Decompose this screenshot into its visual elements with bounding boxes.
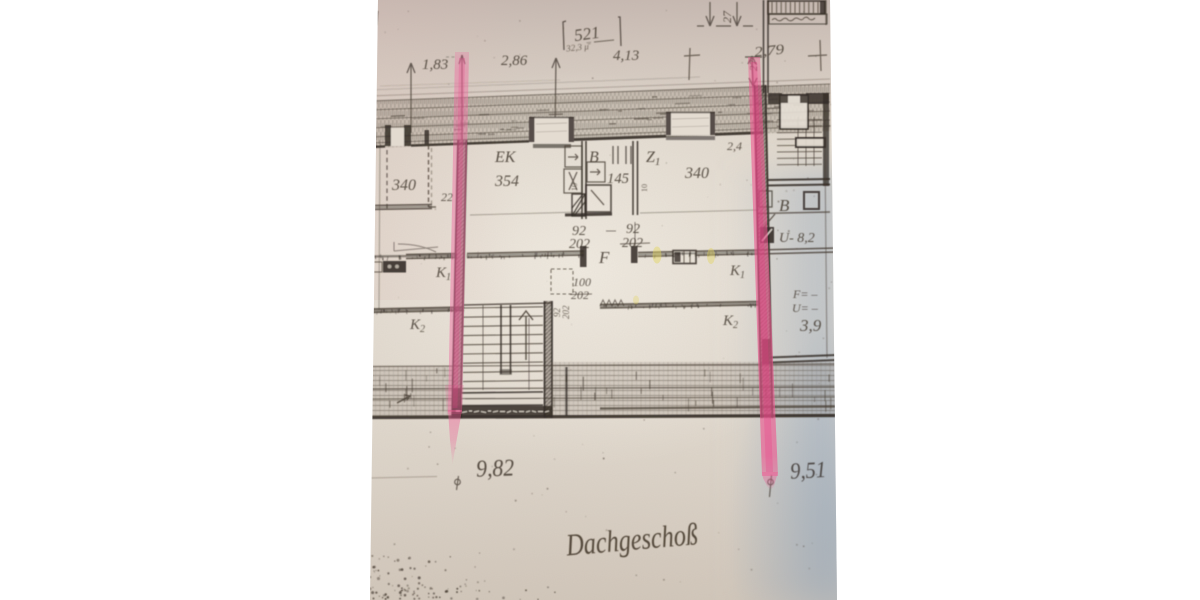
svg-text:100: 100 <box>573 275 591 289</box>
svg-text:10: 10 <box>570 183 579 191</box>
svg-text:U‑ 8,2: U‑ 8,2 <box>779 231 815 246</box>
svg-text:27: 27 <box>720 10 734 23</box>
svg-text:1,83: 1,83 <box>422 57 448 73</box>
svg-text:2,86: 2,86 <box>501 53 528 69</box>
svg-text:U= –: U= – <box>792 301 819 315</box>
svg-text:340: 340 <box>391 177 416 194</box>
svg-text:3,9: 3,9 <box>799 316 822 335</box>
svg-text:2,4: 2,4 <box>727 139 742 153</box>
svg-text:9,51: 9,51 <box>789 457 826 484</box>
svg-text:9,82: 9,82 <box>476 455 515 482</box>
svg-text:F: F <box>598 248 610 267</box>
svg-text:B: B <box>779 196 790 215</box>
svg-text:10: 10 <box>640 184 649 192</box>
svg-text:F= –: F= – <box>792 287 818 301</box>
svg-text:B: B <box>589 149 599 166</box>
svg-text:202: 202 <box>561 305 571 319</box>
svg-text:340: 340 <box>684 165 709 182</box>
svg-text:EK: EK <box>494 149 517 166</box>
svg-text:202: 202 <box>571 288 589 302</box>
svg-text:22: 22 <box>441 190 453 204</box>
svg-text:92: 92 <box>626 222 640 237</box>
svg-text:354: 354 <box>494 173 519 190</box>
svg-text:202: 202 <box>569 237 590 252</box>
svg-text:4,13: 4,13 <box>613 48 639 64</box>
